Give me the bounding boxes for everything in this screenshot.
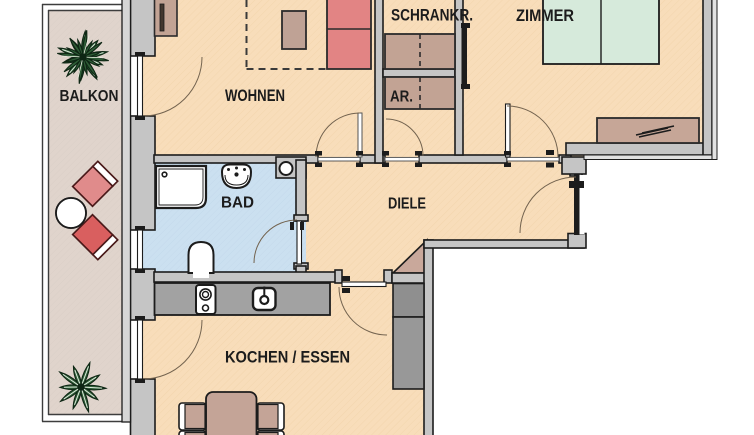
- svg-text:SCHRANKR.: SCHRANKR.: [391, 6, 473, 25]
- svg-text:BAD: BAD: [221, 195, 254, 212]
- svg-text:WOHNEN: WOHNEN: [225, 86, 285, 105]
- svg-text:DIELE: DIELE: [388, 196, 426, 213]
- svg-text:AR.: AR.: [390, 89, 413, 106]
- svg-text:BALKON: BALKON: [60, 88, 119, 105]
- svg-text:KOCHEN / ESSEN: KOCHEN / ESSEN: [225, 348, 350, 367]
- svg-text:ZIMMER: ZIMMER: [516, 6, 574, 25]
